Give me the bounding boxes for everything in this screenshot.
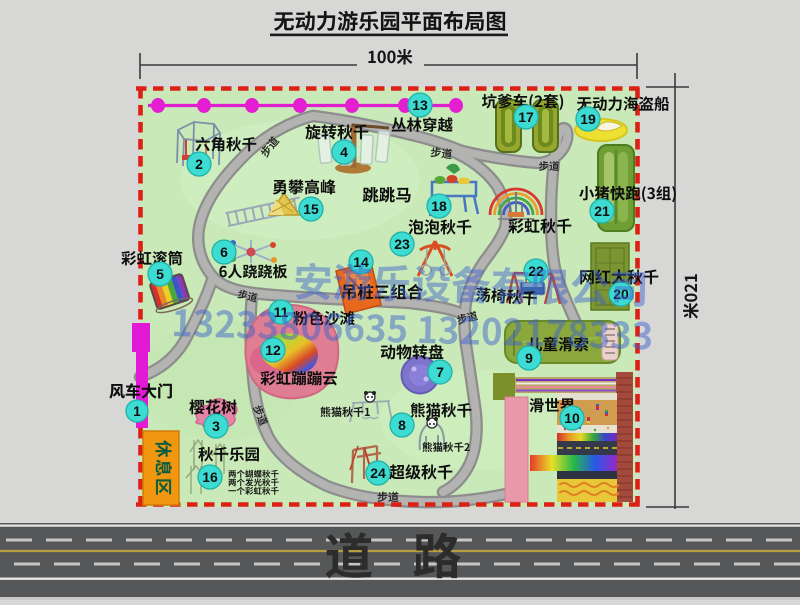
svg-text:10: 10 <box>564 410 580 426</box>
svg-text:3: 3 <box>212 418 220 434</box>
svg-text:21: 21 <box>594 203 610 219</box>
svg-text:12: 12 <box>265 342 281 358</box>
svg-text:4: 4 <box>340 144 348 160</box>
svg-text:9: 9 <box>525 350 533 366</box>
svg-text:18: 18 <box>431 198 447 214</box>
svg-text:17: 17 <box>518 109 534 125</box>
svg-text:23: 23 <box>394 236 410 252</box>
svg-text:19: 19 <box>580 111 596 127</box>
svg-text:13: 13 <box>412 97 428 113</box>
svg-text:6: 6 <box>220 244 228 260</box>
svg-text:2: 2 <box>195 156 203 172</box>
svg-text:24: 24 <box>370 465 386 481</box>
svg-text:5: 5 <box>156 266 164 282</box>
svg-text:16: 16 <box>202 469 218 485</box>
svg-text:15: 15 <box>303 201 319 217</box>
svg-text:7: 7 <box>436 364 444 380</box>
svg-text:8: 8 <box>398 417 406 433</box>
svg-text:1: 1 <box>133 404 141 419</box>
